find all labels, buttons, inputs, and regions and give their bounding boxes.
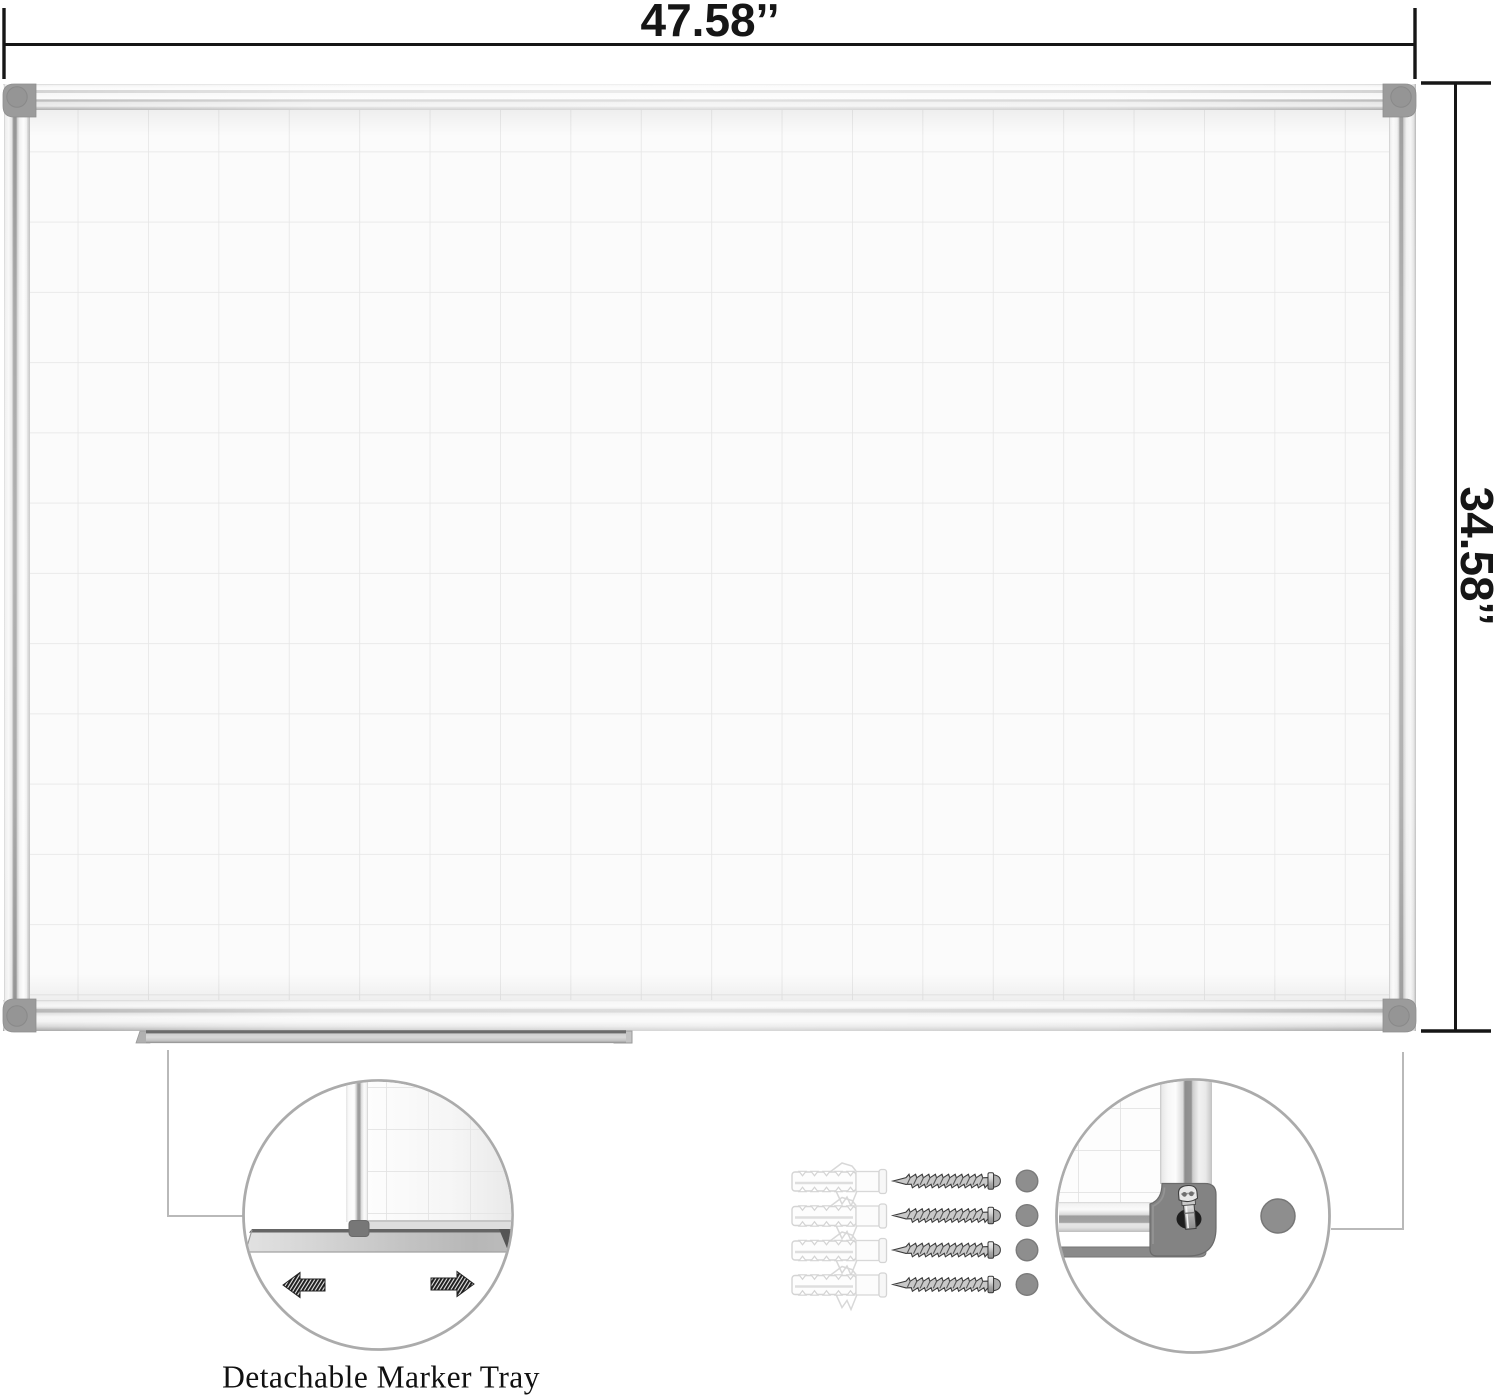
svg-text:Detachable Marker Tray: Detachable Marker Tray <box>222 1360 540 1395</box>
svg-text:34.58’’: 34.58’’ <box>1451 487 1500 626</box>
svg-text:47.58’’: 47.58’’ <box>641 0 780 46</box>
